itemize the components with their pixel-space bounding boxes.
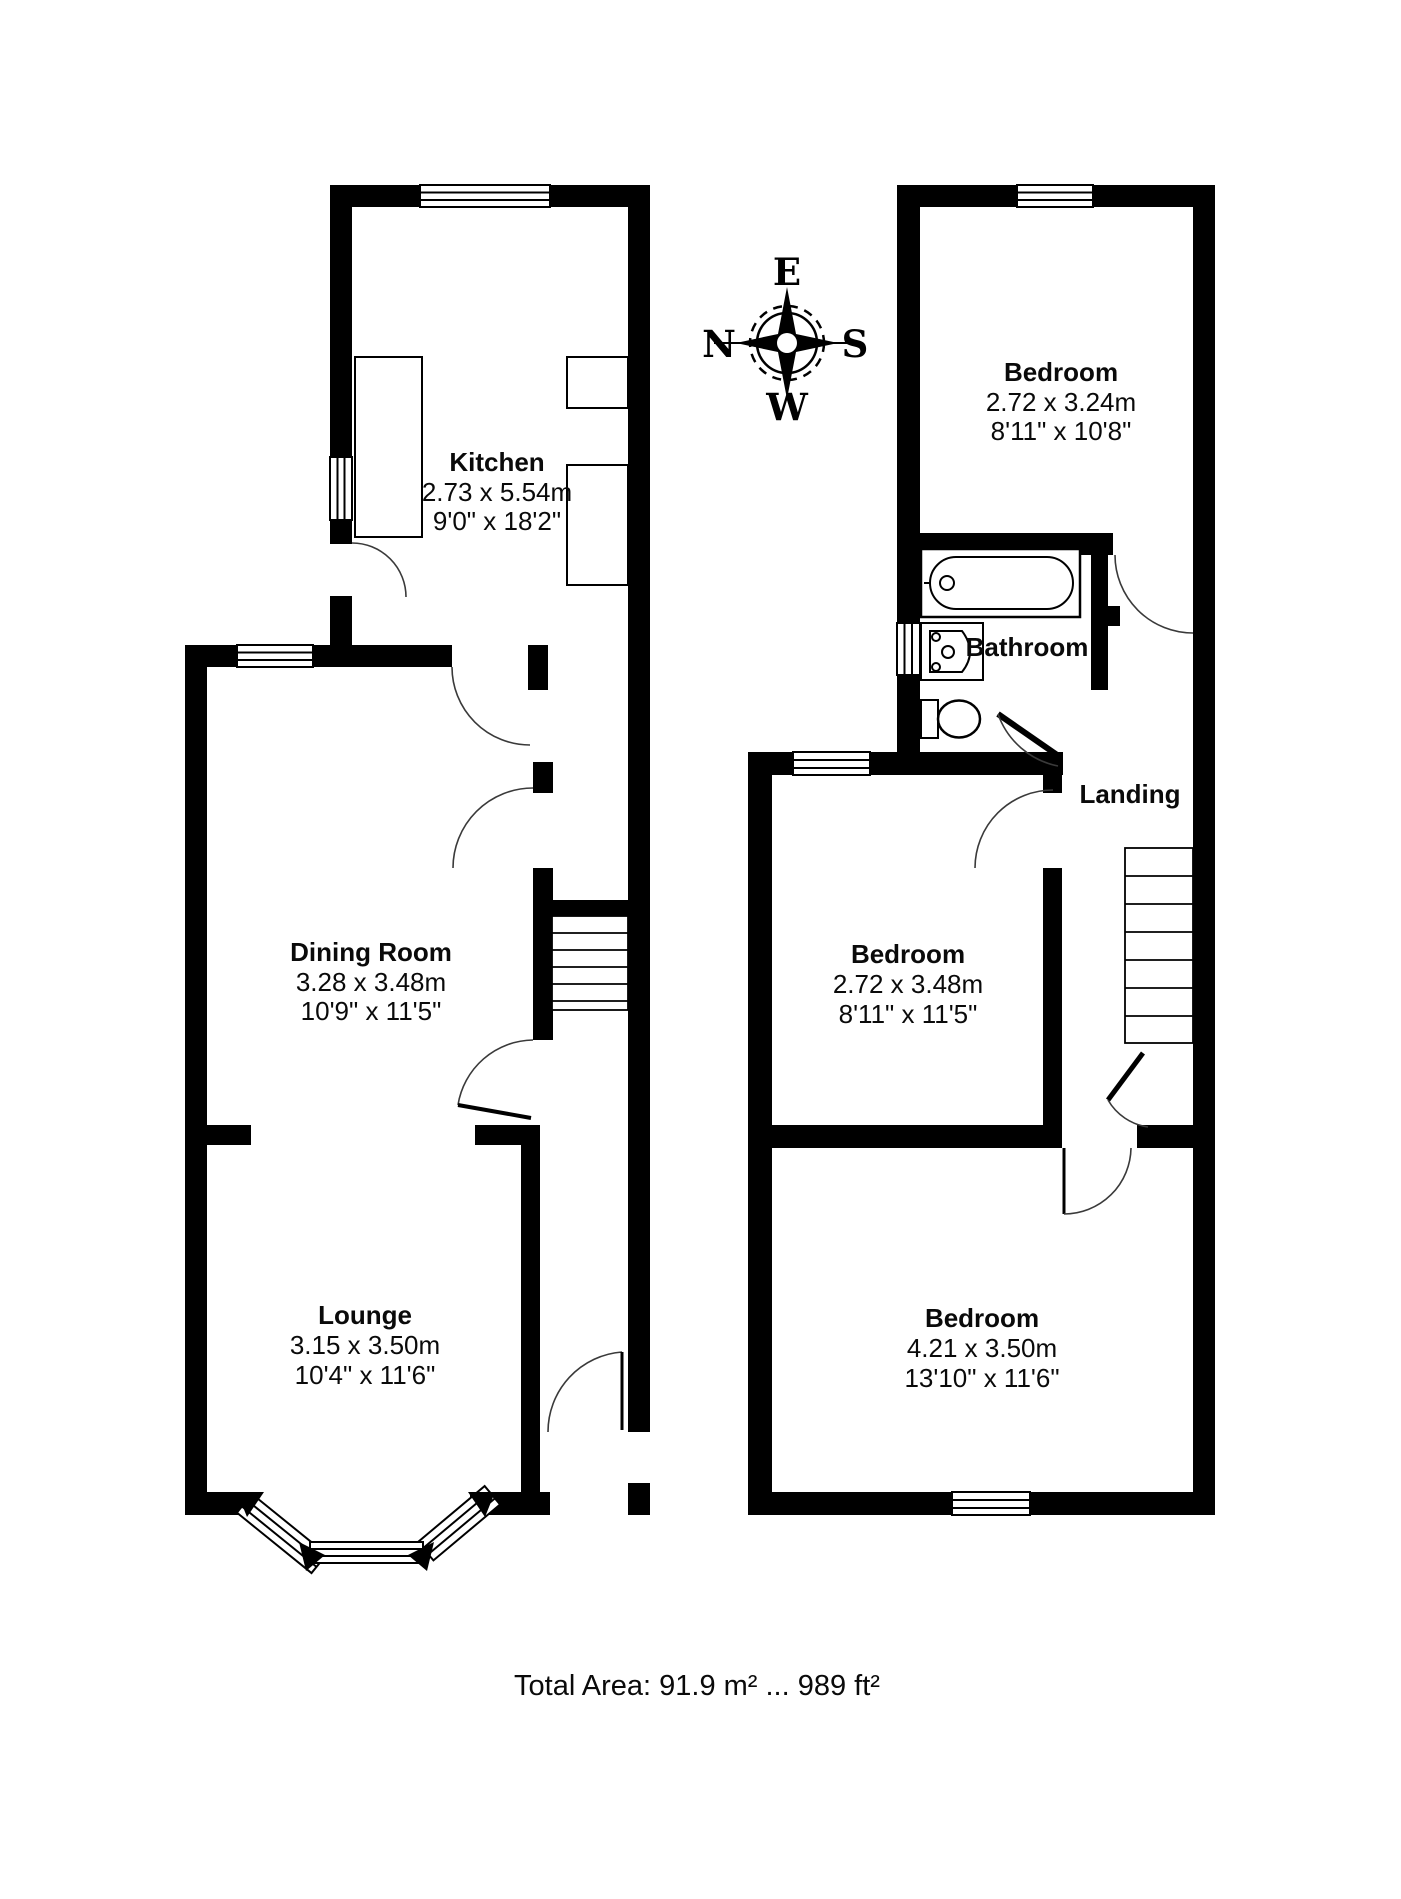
compass-north-label: N <box>702 322 736 366</box>
understairs-door-arc <box>1108 1100 1148 1127</box>
kitchen-label: Kitchen 2.73 x 5.54m 9'0" x 18'2" <box>422 447 572 536</box>
room-metric: 3.15 x 3.50m <box>290 1330 440 1360</box>
compass-rose: E N S W <box>702 250 868 429</box>
wall <box>185 645 207 1515</box>
bathroom-label: Bathroom <box>966 632 1089 662</box>
bedroom-middle-window <box>793 752 870 775</box>
bathroom-door-leaf <box>998 714 1060 757</box>
wall <box>533 868 553 1040</box>
dining-room-window <box>237 645 313 667</box>
compass-west-label: W <box>765 385 808 429</box>
kitchen-window-top <box>420 185 550 207</box>
bedroom-top-label: Bedroom 2.72 x 3.24m 8'11" x 10'8" <box>986 357 1136 446</box>
bathroom-window <box>897 623 920 675</box>
bedroom-bottom-window <box>952 1492 1030 1515</box>
stairs-ground-floor <box>552 916 628 1010</box>
floorplan-canvas: E N S W Kitchen 2.73 x 5.54m 9'0" x 18'2… <box>0 0 1401 1899</box>
wall <box>1104 606 1120 626</box>
room-metric: 2.72 x 3.24m <box>986 387 1136 417</box>
kitchen-hall-door-arc <box>452 667 530 745</box>
room-metric: 2.73 x 5.54m <box>422 477 572 507</box>
lounge-door-leaf <box>458 1105 531 1118</box>
room-name: Bedroom <box>1004 357 1118 387</box>
compass-east-label: E <box>773 250 801 294</box>
wall <box>185 645 452 667</box>
wall <box>1137 1125 1215 1148</box>
bedroom-bottom-label: Bedroom 4.21 x 3.50m 13'10" x 11'6" <box>904 1303 1059 1393</box>
room-name: Kitchen <box>449 447 544 477</box>
room-imperial: 10'9" x 11'5" <box>301 996 442 1026</box>
stairs-first-floor <box>1125 848 1193 1043</box>
wall <box>897 185 920 623</box>
total-area-text: Total Area: 91.9 m² ... 989 ft² <box>514 1670 880 1702</box>
room-name: Lounge <box>318 1300 412 1330</box>
wall <box>897 675 920 752</box>
front-door-arc <box>548 1352 622 1432</box>
wall <box>628 185 650 1432</box>
lounge-label: Lounge 3.15 x 3.50m 10'4" x 11'6" <box>290 1300 440 1390</box>
room-imperial: 13'10" x 11'6" <box>904 1363 1059 1393</box>
wall <box>330 185 352 457</box>
wall <box>550 900 628 916</box>
wall <box>528 645 548 690</box>
kitchen-unit-top-right <box>567 357 628 408</box>
wall <box>748 1125 1062 1148</box>
room-metric: 3.28 x 3.48m <box>296 967 446 997</box>
bedroom-top-window <box>1017 185 1093 207</box>
room-name: Dining Room <box>290 937 452 967</box>
bathtub <box>921 549 1080 617</box>
kitchen-unit-bottom-right <box>567 465 628 585</box>
room-imperial: 8'11" x 10'8" <box>991 416 1132 446</box>
wall <box>1193 185 1215 1515</box>
wall <box>207 1125 251 1145</box>
wall <box>533 762 553 793</box>
room-name: Bedroom <box>925 1303 1039 1333</box>
compass-south-label: S <box>842 322 869 366</box>
lounge-door-arc <box>458 1040 533 1105</box>
bedroom-middle-label: Bedroom 2.72 x 3.48m 8'11" x 11'5" <box>833 939 983 1029</box>
toilet <box>921 700 980 738</box>
wall <box>330 520 352 544</box>
room-name: Bedroom <box>851 939 965 969</box>
bay-window <box>237 1486 500 1573</box>
wall <box>1043 868 1062 1125</box>
room-imperial: 9'0" x 18'2" <box>433 506 561 536</box>
wall <box>628 1483 650 1515</box>
bedroom-bottom-door-arc <box>1064 1148 1131 1214</box>
kitchen-side-door-arc <box>352 543 406 597</box>
room-metric: 2.72 x 3.48m <box>833 969 983 999</box>
dining-room-label: Dining Room 3.28 x 3.48m 10'9" x 11'5" <box>290 937 452 1026</box>
understairs-door-leaf <box>1108 1053 1143 1100</box>
room-imperial: 8'11" x 11'5" <box>839 999 978 1029</box>
kitchen-window-side <box>330 457 352 520</box>
kitchen-counter-left <box>355 357 422 537</box>
bedroom-middle-door-arc <box>975 790 1053 868</box>
wall <box>521 1125 540 1492</box>
room-metric: 4.21 x 3.50m <box>907 1333 1057 1363</box>
compass-center-dot <box>777 333 797 353</box>
room-imperial: 10'4" x 11'6" <box>295 1360 436 1390</box>
bedroom-top-door-arc <box>1115 555 1193 633</box>
landing-label: Landing <box>1079 779 1180 809</box>
dining-hall-door-arc <box>453 788 533 868</box>
